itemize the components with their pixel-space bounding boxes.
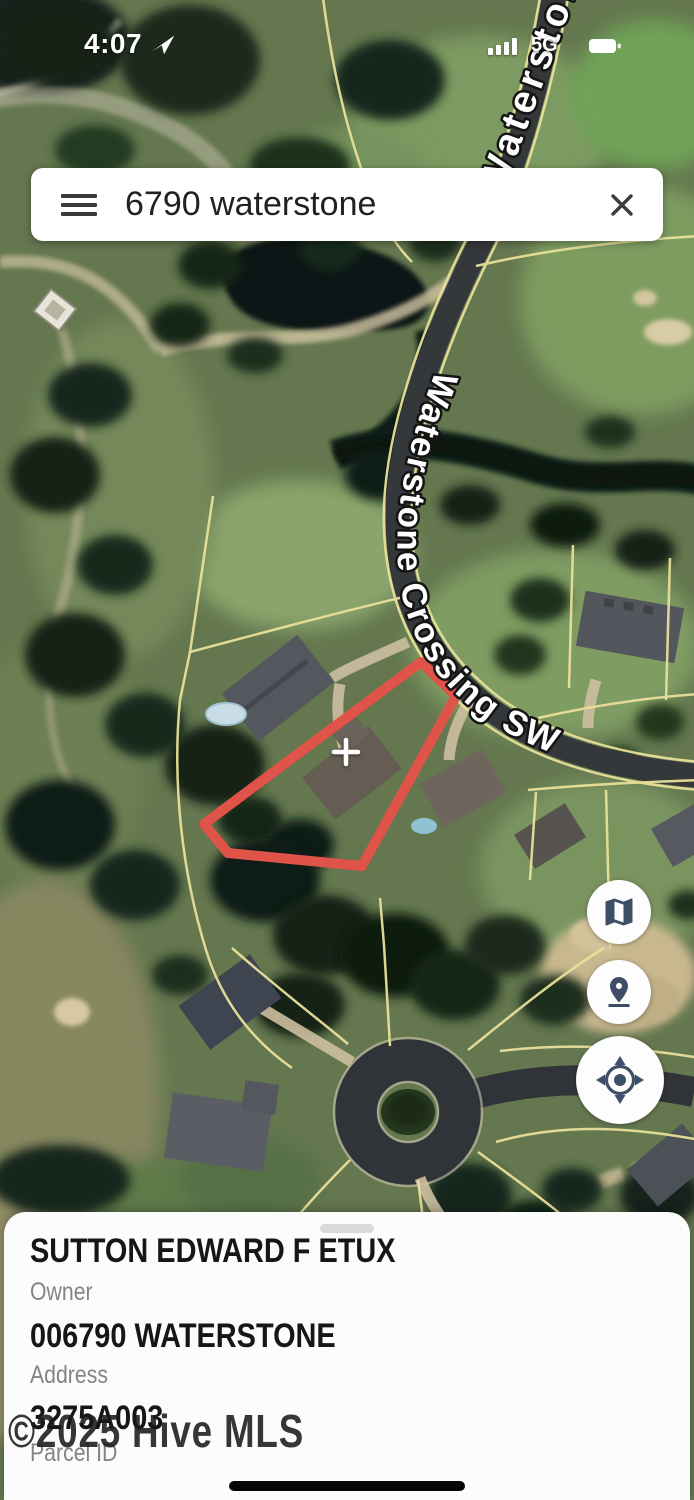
address-label: Address <box>30 1361 108 1390</box>
pin-drop-button[interactable] <box>587 960 651 1024</box>
parcel-map-app: Waterstone Crossing SW Waterstone 4:07 5… <box>0 0 694 1500</box>
search-bar[interactable]: 6790 waterstone <box>31 168 663 241</box>
map-layers-button[interactable] <box>587 880 651 944</box>
close-icon[interactable] <box>607 190 637 220</box>
compass-icon <box>594 1054 646 1106</box>
owner-label: Owner <box>30 1278 93 1307</box>
owner-value: SUTTON EDWARD F ETUX <box>30 1232 396 1271</box>
pin-drop-icon <box>601 974 637 1010</box>
mls-watermark: ©2025 Hive MLS <box>8 1404 304 1458</box>
home-indicator <box>229 1481 465 1491</box>
address-value: 006790 WATERSTONE <box>30 1317 336 1356</box>
map-layers-icon <box>601 894 637 930</box>
hamburger-menu-icon[interactable] <box>61 189 97 221</box>
search-query-text: 6790 waterstone <box>125 185 376 223</box>
pool <box>206 703 246 725</box>
pool <box>411 818 437 834</box>
search-input[interactable]: 6790 waterstone <box>125 185 607 224</box>
my-location-button[interactable] <box>576 1036 664 1124</box>
